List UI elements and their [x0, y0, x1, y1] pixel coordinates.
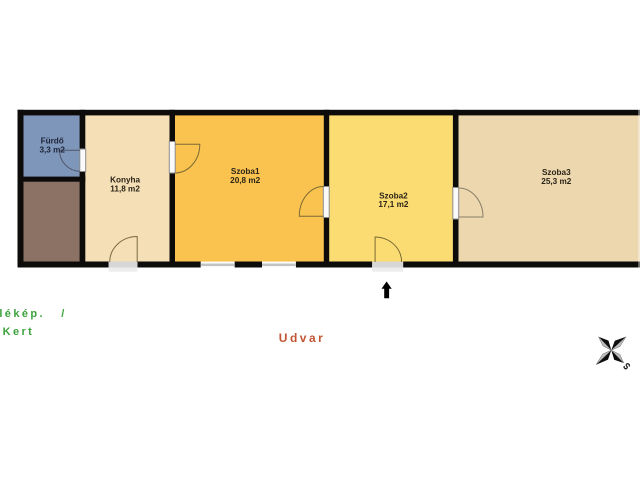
svg-text:25,3 m2: 25,3 m2: [541, 177, 571, 186]
svg-text:Kert: Kert: [3, 326, 35, 338]
svg-text:Szoba1: Szoba1: [231, 167, 260, 176]
svg-text:17,1 m2: 17,1 m2: [378, 200, 408, 209]
svg-text:Fürdő: Fürdő: [41, 136, 64, 145]
svg-text:20,8 m2: 20,8 m2: [230, 176, 260, 185]
svg-text:3,3 m2: 3,3 m2: [39, 145, 65, 154]
svg-text:Udvar: Udvar: [279, 331, 326, 345]
svg-text:Mellékép. /: Mellékép. /: [0, 308, 67, 320]
svg-text:Szoba3: Szoba3: [542, 168, 571, 177]
svg-text:11,8 m2: 11,8 m2: [110, 185, 140, 194]
svg-text:Konyha: Konyha: [110, 176, 140, 185]
